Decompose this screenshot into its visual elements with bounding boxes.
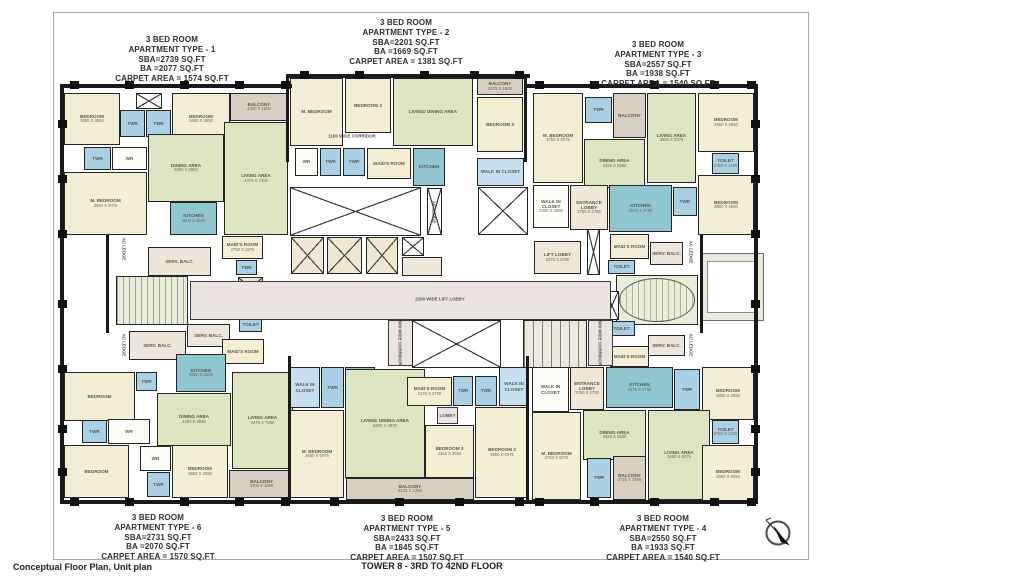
room-twr: TWR: [147, 472, 170, 497]
room-lobby: LOBBY: [437, 407, 458, 424]
plan-annotation-1500-wide-corridor: 1500 WIDE CORRIDOR: [398, 318, 403, 366]
room-label: SERV. BALC.: [165, 259, 194, 264]
room-m-bedroom: M. BEDROOM3650 X 6075: [290, 410, 344, 498]
room-stair: [116, 276, 188, 325]
column-block: [751, 175, 760, 183]
apartment-summary-line: CARPET AREA = 1574 SQ.FT: [72, 74, 272, 84]
apartment-summary-line: CARPET AREA = 1540 SQ.FT: [563, 553, 763, 563]
room-dimension: 3650 X 6075: [94, 204, 118, 209]
apartment-summary-line: BA =1938 SQ.FT: [558, 69, 758, 79]
room-lift: [291, 237, 324, 274]
room-label: TWR: [127, 121, 137, 126]
room-dimension: 3650 X 6075: [490, 453, 514, 458]
room-label: TWR: [153, 121, 163, 126]
room-label: TWR: [92, 156, 102, 161]
room-bedroom-3: BEDROOM 3: [477, 97, 523, 152]
wall-segment: [60, 84, 64, 504]
room-label: TWR: [458, 388, 468, 393]
apartment-summary-type-3: 3 BED ROOMAPARTMENT TYPE - 3SBA=2557 SQ.…: [558, 40, 758, 89]
room-label: TWR: [682, 387, 692, 392]
room-twr: TWR: [674, 369, 700, 410]
apartment-summary-line: APARTMENT TYPE - 6: [58, 523, 258, 533]
apartment-summary-line: SBA=2201 SQ.FT: [306, 38, 506, 48]
room-living-area: LIVING AREA4475 X 7200: [232, 372, 293, 469]
column-block: [590, 498, 599, 506]
room-kitchen: KITCHEN3800 X 3525: [170, 202, 217, 235]
room-dimension: 3650 X 3650: [714, 123, 738, 128]
floor-plan-sheet: BEDROOM3650 X 3650TWRTWRBEDROOM3650 X 36…: [0, 0, 1024, 576]
room-label: TWR: [594, 475, 604, 480]
column-block: [515, 498, 524, 506]
column-block: [751, 468, 760, 476]
room-balcony: BALCONY: [613, 93, 646, 138]
room-label: WR: [125, 429, 133, 434]
wall-segment: [524, 78, 527, 162]
room-kitchen: KITCHEN: [413, 148, 445, 186]
room-twr: TWR: [320, 148, 341, 176]
room-dimension: 2750 X 1400: [714, 432, 738, 437]
room-shaft: [136, 93, 162, 109]
room-label: WR: [303, 159, 311, 164]
room-shaft: [478, 187, 528, 235]
room-bedroom: BEDROOM3650 X 3650: [702, 445, 754, 504]
column-block: [180, 498, 189, 506]
apartment-summary-type-6: 3 BED ROOMAPARTMENT TYPE - 6SBA=2731 SQ.…: [58, 513, 258, 562]
column-block: [710, 498, 719, 506]
apartment-summary-line: SBA=2557 SQ.FT: [558, 60, 758, 70]
column-block: [395, 498, 404, 506]
apartment-summary-line: CARPET AREA = 1540 SQ.FT: [558, 79, 758, 89]
room-twr: TWR: [585, 97, 612, 123]
column-block: [58, 300, 67, 308]
room-label: TWR: [680, 199, 690, 204]
apartment-summary-line: BA =1933 SQ.FT: [563, 543, 763, 553]
room-serv-balc: SERV. BALC.: [148, 247, 211, 276]
room-walk-in-closet: WALK IN CLOSET: [477, 158, 524, 186]
room-m-bedroom: M. BEDROOM3650 X 6075: [64, 172, 147, 235]
room-shaft: [290, 187, 421, 236]
room-dimension: 5050 X 2850: [174, 168, 198, 173]
column-block: [751, 230, 760, 238]
room-lobby: [402, 257, 442, 276]
room-shaft: [412, 320, 501, 368]
room-kitchen: KITCHEN4575 X 2750: [606, 367, 673, 408]
apartment-summary-line: 3 BED ROOM: [72, 35, 272, 45]
room-serv-balc: SERV. BALC.: [648, 335, 685, 356]
column-block: [751, 425, 760, 433]
room-dimension: 3650 X 3650: [716, 475, 740, 480]
room-dimension: 3650 X 6075: [305, 454, 329, 459]
apartment-summary-line: SBA=2731 SQ.FT: [58, 533, 258, 543]
room-kitchen: KITCHEN3800 X 3525: [176, 354, 226, 392]
plan-annotation-1500-wide-corridor: 1500 WIDE CORRIDOR: [598, 318, 603, 366]
room-label: SERV. BALC.: [652, 343, 681, 348]
apartment-summary-line: APARTMENT TYPE - 1: [72, 45, 272, 55]
apartment-summary-line: 3 BED ROOM: [307, 514, 507, 524]
room-twr: TWR: [236, 260, 257, 275]
room-twr: TWR: [136, 372, 157, 391]
room-dimension: 2075 X 2000: [546, 258, 570, 263]
column-block: [58, 230, 67, 238]
room-dimension: 2750 X 2750: [577, 210, 601, 215]
room-label: TWR: [349, 159, 359, 164]
column-block: [470, 71, 479, 79]
room-walk-in-closet: WALK IN CLOSET2300 X 3850: [533, 185, 569, 228]
room-entrance-lobby: ENTRANCE LOBBY2750 X 2700: [570, 367, 604, 410]
room-label: MAID'S ROOM: [614, 244, 645, 249]
room-dimension: 3250 X 3650: [438, 452, 462, 457]
room-dimension: 2725 X 1800: [618, 478, 642, 483]
room-label: TWR: [89, 429, 99, 434]
room-dimension: 4025 X 2850: [603, 164, 627, 169]
wall-segment: [286, 78, 289, 162]
room-label: BEDROOM: [88, 394, 112, 399]
plan-annotation-ac-ledge: AC LEDGE: [122, 238, 127, 261]
room-dimension: 2750 X 1875: [231, 248, 255, 253]
room-lift: [327, 237, 362, 274]
room-label: MAID'S ROOM: [227, 349, 258, 354]
room-living-area: LIVING AREA3650 X 6075: [648, 410, 710, 500]
room-label: BEDROOM 2: [354, 103, 382, 108]
plan-annotation-ac-ledge: AC LEDGE: [122, 334, 127, 357]
apartment-summary-line: 3 BED ROOM: [563, 514, 763, 524]
room-maid-s-room: MAID'S ROOM2750 X 1875: [222, 236, 263, 259]
room-label: SERV. BALC.: [652, 251, 681, 256]
room-bedroom-2: BEDROOM 23650 X 6075: [475, 407, 529, 498]
apartment-summary-type-2: 3 BED ROOMAPARTMENT TYPE - 2SBA=2201 SQ.…: [306, 18, 506, 67]
room-label: WALK IN CLOSET: [481, 169, 520, 174]
room-label: WALK IN CLOSET: [500, 381, 528, 392]
apartment-summary-line: APARTMENT TYPE - 2: [306, 28, 506, 38]
room-kitchen: KITCHEN4575 X 2750: [609, 185, 672, 232]
column-block: [281, 498, 290, 506]
column-block: [650, 498, 659, 506]
room-dimension: 2750 X 2700: [575, 391, 599, 396]
column-block: [455, 498, 464, 506]
room-label: BEDROOM 3: [486, 122, 514, 127]
room-bedroom-2: BEDROOM 2: [345, 78, 391, 133]
room-maid-s-room: MAID'S ROOM: [367, 148, 411, 179]
column-block: [58, 468, 67, 476]
room-walk-in-closet: WALK IN CLOSET: [290, 367, 320, 408]
room-twr: TWR: [343, 148, 365, 176]
column-block: [751, 120, 760, 128]
room-bedroom: BEDROOM: [64, 445, 129, 498]
plan-annotation-1100-wide-corridor: 1100 WIDE CORRIDOR: [328, 134, 375, 139]
room-balcony: BALCONY6125 X 1200: [346, 478, 474, 500]
apartment-summary-line: 3 BED ROOM: [558, 40, 758, 50]
room-wr: WR: [112, 147, 147, 170]
room-wr: WR: [140, 446, 171, 471]
room-label: WALK IN CLOSET: [533, 384, 568, 395]
column-block: [515, 71, 524, 79]
room-wr: WR: [295, 148, 318, 176]
room-label: SERV. BALC.: [143, 343, 172, 348]
apartment-summary-line: SBA=2739 SQ.FT: [72, 55, 272, 65]
column-block: [58, 120, 67, 128]
room-dimension: 2750 X 1400: [714, 164, 738, 169]
room-dimension: 6125 X 1200: [398, 489, 422, 494]
room-stair2: [616, 275, 698, 325]
room-label: TOILET: [613, 326, 629, 331]
room-shaft: [587, 229, 600, 275]
room-dimension: 3650 X 3650: [189, 119, 213, 124]
room-dimension: 4025 X 2850: [603, 435, 627, 440]
apartment-summary-line: CARPET AREA = 1570 SQ.FT: [58, 552, 258, 562]
room-label: KITCHEN: [419, 164, 439, 169]
room-bedroom: BEDROOM: [64, 372, 135, 421]
room-dining-area: DINING AREA4025 X 2850: [584, 139, 645, 188]
column-block: [535, 81, 544, 89]
room-label: TOILET: [242, 322, 258, 327]
wall-segment: [526, 356, 529, 504]
room-dimension: 2075 X 1800: [488, 87, 512, 92]
room-maid-s-room: MAID'S ROOM2175 X 2700: [407, 377, 452, 406]
column-block: [330, 498, 339, 506]
room-living-area: LIVING AREA3650 X 6075: [647, 93, 696, 183]
room-label: LOBBY: [439, 413, 455, 418]
room-dimension: 5800 X 4975: [373, 424, 397, 429]
room-m-bedroom: M. BEDROOM3750 X 6075: [533, 93, 583, 183]
room-label: M. BEDROOM: [301, 109, 331, 114]
room-lift: [366, 237, 398, 274]
apartment-summary-line: BA =2070 SQ.FT: [58, 542, 258, 552]
room-wr: WR: [108, 419, 150, 444]
room-label: SERV. BALC.: [194, 333, 223, 338]
room-living-area: LIVING AREA4475 X 7200: [224, 122, 288, 235]
room-bedroom: BEDROOM3800 X 3650: [698, 175, 754, 235]
apartment-summary-line: APARTMENT TYPE - 3: [558, 50, 758, 60]
apartment-summary-line: CARPET AREA = 1381 SQ.FT: [306, 57, 506, 67]
room-walk-in-closet: WALK IN CLOSET: [499, 367, 529, 406]
room-bedroom: BEDROOM3650 X 3650: [698, 93, 754, 152]
room-maid-s-room: MAID'S ROOM: [610, 346, 649, 367]
room-dining-area: DINING AREA4400 X 2850: [157, 393, 231, 446]
caption-drawing-title: Conceptual Floor Plan, Unit plan: [13, 562, 152, 572]
room-twr: TWR: [587, 458, 611, 498]
room-twr: TWR: [82, 420, 107, 443]
apartment-summary-line: APARTMENT TYPE - 4: [563, 524, 763, 534]
room-twr: TWR: [475, 376, 497, 406]
apartment-summary-line: BA =1669 SQ.FT: [306, 47, 506, 57]
room-label: TWR: [481, 388, 491, 393]
room-dimension: 3650 X 3650: [80, 119, 104, 124]
room-maid-s-room: MAID'S ROOM: [222, 339, 264, 364]
room-dining-area: DINING AREA5050 X 2850: [148, 134, 224, 202]
room-label: TWR: [325, 159, 335, 164]
wall-segment: [754, 84, 758, 504]
wall-segment: [700, 235, 703, 333]
room-label: MAID'S ROOM: [373, 161, 404, 166]
room-toilet: TOILET2750 X 1400: [712, 420, 739, 444]
room-twr: TWR: [453, 376, 473, 406]
room-label: WALK IN CLOSET: [291, 382, 319, 393]
room-dimension: 3650 X 3650: [188, 472, 212, 477]
room-toilet: TOILET2750 X 1400: [712, 153, 739, 174]
column-block: [355, 71, 364, 79]
column-block: [58, 175, 67, 183]
room-dimension: 3750 X 6075: [546, 138, 570, 143]
apartment-summary-line: APARTMENT TYPE - 5: [307, 524, 507, 534]
apartment-summary-type-4: 3 BED ROOMAPARTMENT TYPE - 4SBA=2550 SQ.…: [563, 514, 763, 563]
room-label: TWR: [153, 482, 163, 487]
room-label: TWR: [327, 385, 337, 390]
north-arrow-icon: [760, 515, 796, 551]
room-label: TWR: [141, 379, 151, 384]
column-block: [751, 300, 760, 308]
room-balcony: BALCONY4400 X 1800: [229, 470, 294, 498]
column-block: [235, 498, 244, 506]
apartment-summary-line: SBA=2550 SQ.FT: [563, 534, 763, 544]
room-label: TWR: [593, 107, 603, 112]
room-twr: TWR: [84, 147, 111, 170]
room-bedroom: BEDROOM3650 X 3650: [64, 93, 120, 145]
room-dimension: 2300 X 3850: [539, 209, 563, 214]
room-twr: TWR: [321, 367, 344, 408]
room-label: LIVING/ DINING AREA: [409, 109, 457, 114]
room-dining-area: DINING AREA4025 X 2850: [583, 410, 646, 460]
room-bedroom: BEDROOM3650 X 3650: [172, 445, 228, 498]
apartment-summary-line: BA =2077 SQ.FT: [72, 64, 272, 74]
wall-segment: [286, 74, 530, 78]
room-dimension: 3800 X 3525: [182, 219, 206, 224]
room-dimension: 4475 X 7200: [244, 179, 268, 184]
room-dimension: 4400 X 1800: [247, 107, 271, 112]
room-shaft: [402, 237, 424, 256]
apartment-summary-line: 3 BED ROOM: [306, 18, 506, 28]
room-label: BALCONY: [618, 113, 641, 118]
room-m-bedroom: M. BEDROOM3750 X 6075: [532, 412, 581, 500]
room-serv-balc: SERV. BALC.: [650, 242, 683, 265]
apartment-summary-type-5: 3 BED ROOMAPARTMENT TYPE - 5SBA=2433 SQ.…: [307, 514, 507, 563]
room-dimension: 4575 X 2750: [628, 388, 652, 393]
plan-annotation-ac-ledge: AC LEDGE: [432, 201, 437, 224]
room-twr: TWR: [673, 187, 697, 216]
room-twr: TWR: [120, 110, 145, 137]
plan-annotation-2200-wide-lift-lobby: 2200 WIDE LIFT LOBBY: [415, 297, 465, 302]
column-block: [125, 498, 134, 506]
room-dimension: 4400 X 2850: [182, 420, 206, 425]
room-label: TWR: [241, 265, 251, 270]
column-block: [281, 81, 290, 89]
room-duct: [523, 320, 587, 368]
room-dimension: 3800 X 3650: [714, 205, 738, 210]
room-balcony: BALCONY4400 X 1800: [230, 93, 288, 121]
room-living-dining-area: LIVING/ DINING AREA: [393, 78, 473, 146]
room-dimension: 4575 X 2750: [629, 209, 653, 214]
plan-annotation-ac-ledge: AC LEDGE: [689, 334, 694, 357]
room-dimension: 3650 X 6075: [667, 455, 691, 460]
column-block: [58, 365, 67, 373]
wall-segment: [106, 235, 109, 333]
room-balcony: BALCONY2725 X 1800: [613, 456, 646, 500]
room-dimension: 4475 X 7200: [251, 421, 275, 426]
room-dimension: 3650 X 6075: [660, 138, 684, 143]
column-block: [751, 365, 760, 373]
room-toilet: TOILET: [239, 318, 262, 332]
wall-segment: [288, 356, 291, 504]
room-balcony: BALCONY2075 X 1800: [477, 78, 523, 95]
column-block: [535, 498, 544, 506]
apartment-summary-type-1: 3 BED ROOMAPARTMENT TYPE - 1SBA=2739 SQ.…: [72, 35, 272, 84]
room-walk-in-closet: WALK IN CLOSET: [532, 367, 569, 412]
room-entrance-lobby: ENTRANCE LOBBY2750 X 2750: [570, 185, 608, 230]
room-label: TOILET: [613, 264, 629, 269]
room-label: MAID'S ROOM: [614, 354, 645, 359]
column-block: [300, 71, 309, 79]
room-dimension: 3800 X 3650: [716, 394, 740, 399]
room-dimension: 4400 X 1800: [250, 484, 274, 489]
apartment-summary-line: 3 BED ROOM: [58, 513, 258, 523]
plan-annotation-ac-ledge: AC LEDGE: [689, 241, 694, 264]
room-label: WR: [152, 456, 160, 461]
column-block: [58, 425, 67, 433]
room-toilet: TOILET: [608, 260, 635, 274]
wall-segment: [62, 84, 292, 88]
room-bedroom-3: BEDROOM 33250 X 3650: [425, 425, 474, 478]
room-dimension: 3750 X 6075: [545, 456, 569, 461]
room-corr: [190, 281, 611, 320]
room-twr: TWR: [146, 110, 171, 137]
column-block: [420, 71, 429, 79]
column-block: [747, 498, 756, 506]
room-dimension: 2175 X 2700: [418, 392, 442, 397]
room-lift-lobby: LIFT LOBBY2075 X 2000: [534, 241, 581, 274]
apartment-summary-line: BA =1845 SQ.FT: [307, 543, 507, 553]
caption-tower-floor: TOWER 8 - 3RD TO 42ND FLOOR: [361, 561, 502, 571]
room-label: BEDROOM: [85, 469, 109, 474]
room-maid-s-room: MAID'S ROOM: [610, 234, 649, 259]
column-block: [70, 498, 79, 506]
room-dimension: 3800 X 3525: [189, 373, 213, 378]
room-terr-in: [707, 261, 757, 313]
apartment-summary-line: SBA=2433 SQ.FT: [307, 534, 507, 544]
room-label: WR: [126, 156, 134, 161]
